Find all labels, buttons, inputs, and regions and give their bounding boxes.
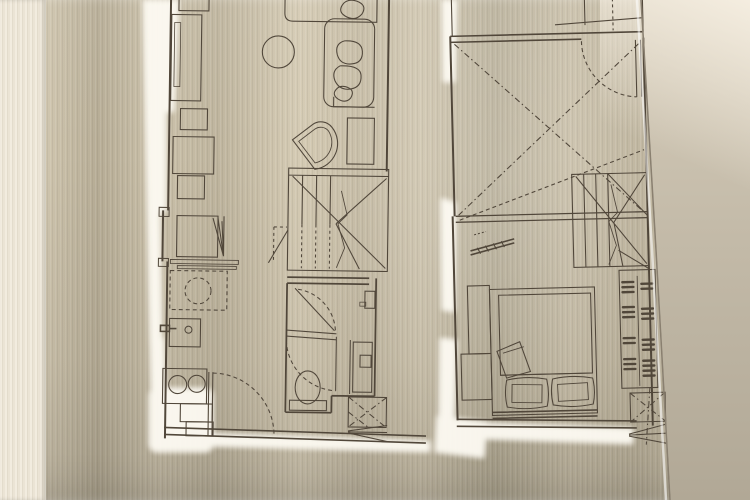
sofa-cushion [341,0,364,19]
washing-machine [170,270,228,310]
balcony-edge [451,0,643,36]
plaque-edge-line [641,0,670,500]
photo-scene [0,0,750,500]
desk [176,216,218,258]
toilet-cistern [289,400,326,411]
dining-chair [180,109,207,130]
side-table [347,118,375,164]
bathroom [285,277,376,413]
shower-door-arc [297,289,336,332]
work-nook [170,215,239,310]
folded-blanket [497,342,531,379]
stair-winders [576,173,649,268]
plaque-edge-highlight [637,0,666,500]
folding-chair [212,216,224,256]
floor-plan-lower-level [156,0,432,443]
wall-ledge-desk [470,231,515,255]
floor-plan-artwork [0,0,750,500]
kitchen-sink [169,318,200,346]
nightstand [467,285,491,354]
lounge-chair [292,116,348,172]
shelf [365,291,375,308]
door-leaf [336,337,337,391]
dining-chair [177,176,204,199]
shelf [170,259,238,269]
staircase-lower [268,168,388,272]
floor-plan-upper-level [446,0,666,449]
guard-railing [456,212,648,223]
toilet [295,371,320,404]
door-swing-arc [212,373,275,436]
dining-table [173,137,215,175]
stair-treads [584,174,610,268]
living-furniture [169,0,377,201]
mattress [499,293,593,375]
sink-drain [185,326,192,333]
door-swing-arc [581,40,636,98]
sofa [324,19,375,108]
bed [459,283,597,419]
sofa-cushion [334,66,362,90]
round-table [262,36,294,68]
void-cross [454,40,645,221]
walls-lower [156,0,432,443]
nightstand [461,353,492,400]
door-swing-arc [286,340,337,391]
faucet [160,325,176,331]
entry-door-lower [208,372,275,437]
staircase-upper [572,173,649,268]
sofa-cushion [336,41,362,65]
vanity-basin [360,355,371,367]
